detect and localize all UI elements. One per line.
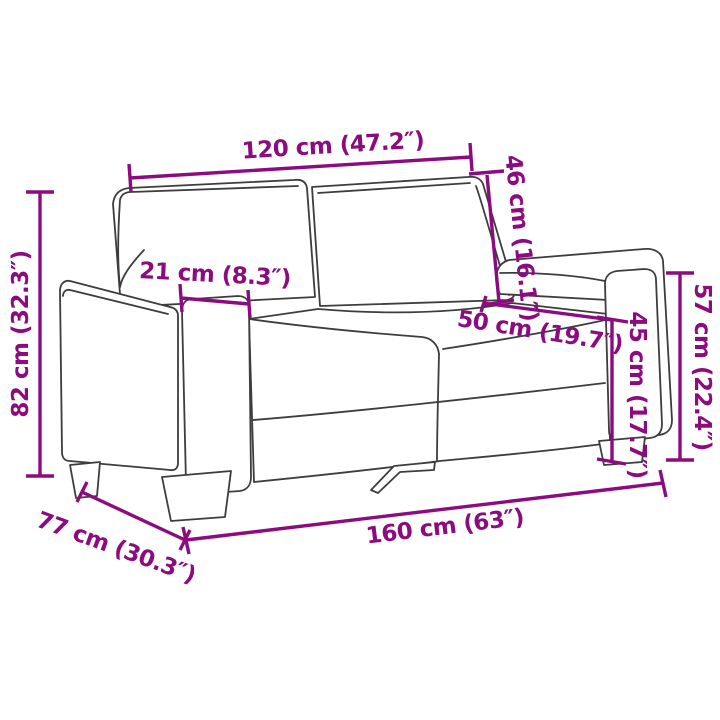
right-back-cushion — [312, 177, 515, 306]
overall-height-label: 82 cm (32.3″) — [8, 250, 34, 417]
armrest-height-label: 57 cm (22.4″) — [689, 283, 715, 450]
sofa-dimension-diagram: 120 cm (47.2″) 46 cm (16.1″) 82 cm (32.3… — [0, 0, 720, 720]
front-left-leg — [162, 471, 231, 521]
left-arm-inner-panel — [182, 296, 251, 494]
left-arm-outer-face — [60, 281, 178, 470]
diagram-canvas — [0, 0, 720, 720]
seat-height-label: 45 cm (17.7″) — [624, 311, 650, 478]
